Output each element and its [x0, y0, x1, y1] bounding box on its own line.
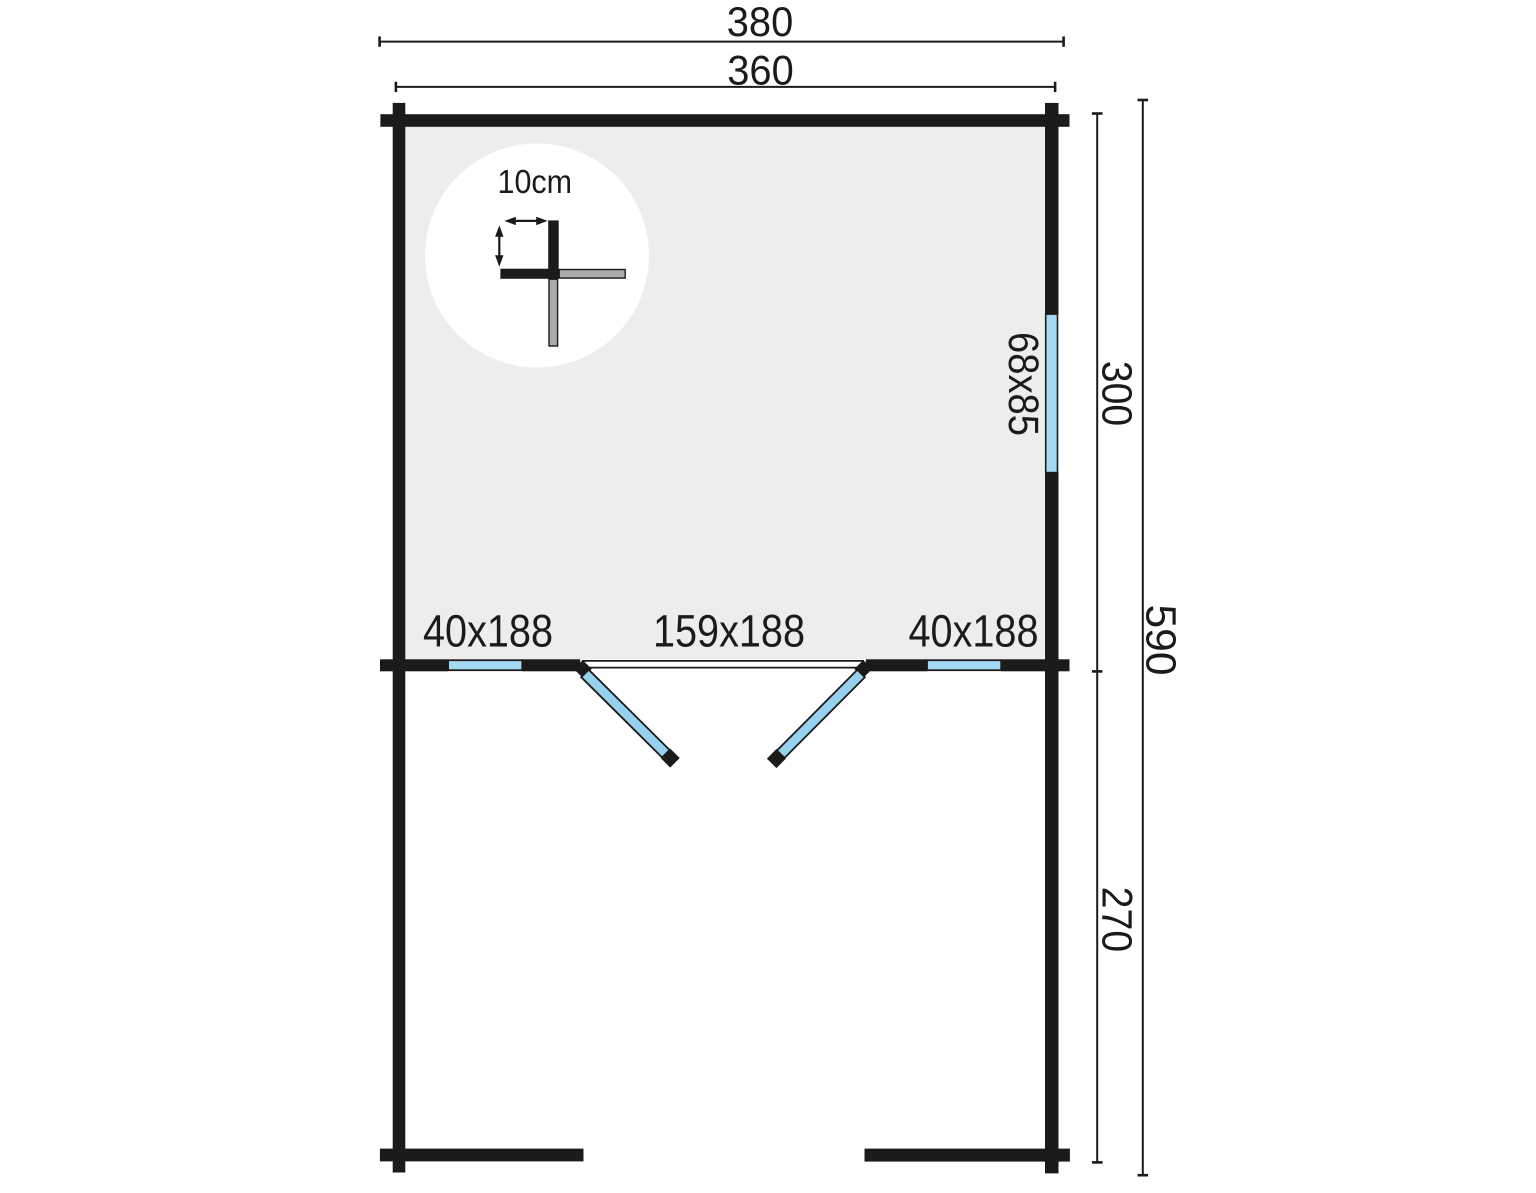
svg-text:300: 300: [1093, 361, 1141, 427]
svg-text:68x85: 68x85: [999, 332, 1047, 436]
svg-text:360: 360: [727, 46, 794, 93]
svg-text:159x188: 159x188: [653, 606, 805, 657]
svg-text:590: 590: [1136, 605, 1184, 676]
svg-text:40x188: 40x188: [423, 606, 553, 657]
svg-text:270: 270: [1093, 887, 1141, 953]
svg-text:380: 380: [727, 0, 794, 45]
svg-text:40x188: 40x188: [909, 606, 1039, 657]
svg-text:10cm: 10cm: [498, 163, 573, 200]
